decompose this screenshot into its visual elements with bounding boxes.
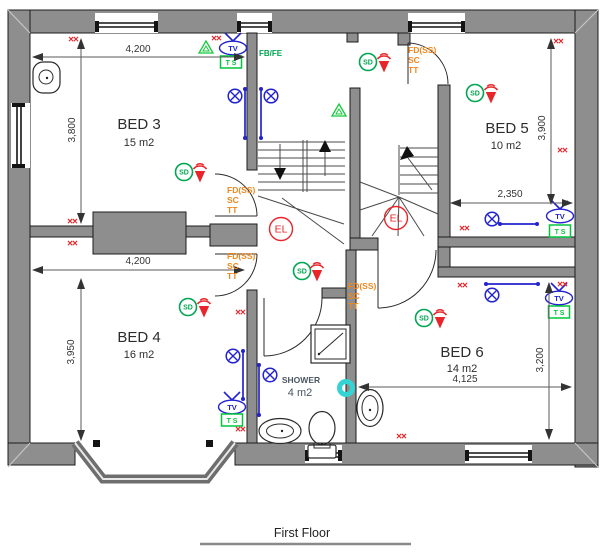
svg-text:TT: TT	[408, 65, 419, 75]
cross-marker-icon	[396, 432, 407, 443]
wash-basin-bed3	[33, 62, 60, 93]
room-area-bed5: 10 m2	[491, 140, 522, 152]
svg-text:FD(SS): FD(SS)	[227, 251, 256, 261]
socket-icon	[485, 212, 499, 226]
fire-blanket-label: FB/FE	[259, 49, 283, 58]
wall-bed4-shower	[247, 290, 257, 443]
smoke-detector-icon	[467, 85, 484, 102]
floor-plan-drawing: SD TV T S EL ××	[0, 0, 606, 554]
wall-bed5-bottom	[438, 237, 575, 247]
fire-door-label-bed4: FD(SS) SC TT	[227, 251, 256, 281]
room-area-shower: 4 m2	[288, 387, 312, 399]
drawing-title: First Floor	[200, 526, 411, 544]
cross-marker-icon	[553, 37, 564, 48]
sounder-icon	[378, 54, 391, 73]
smoke-detector-icon	[294, 263, 311, 280]
wall-bed3-bed4-left	[30, 226, 93, 237]
window-top-3	[408, 13, 465, 33]
tv-socket-icon	[221, 56, 242, 68]
fire-door-labels: FD(SS) SC TT FD(SS) SC TT FD(SS) SC TT F…	[227, 45, 437, 311]
smoke-detector-icon	[180, 299, 197, 316]
window-top-2	[237, 13, 272, 33]
cross-marker-icon	[557, 146, 568, 157]
tv-socket-icon	[550, 225, 571, 237]
dimension-bed5-width: 2,350	[497, 189, 522, 200]
svg-text:FD(SS): FD(SS)	[227, 185, 256, 195]
floor-plan-page: SD TV T S EL ××	[0, 0, 606, 554]
wall-bed3-landing	[247, 33, 257, 170]
cross-marker-icon	[235, 308, 246, 319]
svg-text:TT: TT	[227, 205, 238, 215]
wiring-runs	[243, 89, 538, 415]
title-first-floor: First Floor	[274, 526, 330, 540]
wall-bottom-left	[8, 443, 75, 465]
tv-point-icon	[547, 201, 574, 223]
socket-icon	[226, 349, 240, 363]
tv-point-icon	[219, 392, 246, 414]
wall-bottom	[235, 443, 598, 465]
room-label-bed4: BED 4	[117, 329, 160, 346]
smoke-detector-icon	[360, 54, 377, 71]
window-bottom-bed6	[465, 445, 532, 463]
fire-door-label-bed3: FD(SS) SC TT	[227, 185, 256, 215]
wall-door-nook	[210, 224, 257, 246]
dimension-bed6-depth: 3,200	[535, 347, 546, 372]
cross-marker-icon	[67, 239, 78, 250]
window-top-1	[95, 13, 158, 33]
room-area-bed6: 14 m2	[447, 363, 478, 375]
heat-alarm-icon	[332, 104, 346, 116]
sounder-icon	[311, 263, 324, 282]
fire-door-label-bed5: FD(SS) SC TT	[408, 45, 437, 75]
svg-text:TT: TT	[348, 301, 359, 311]
socket-icon	[263, 368, 277, 382]
svg-text:SC: SC	[348, 291, 360, 301]
cross-marker-icon	[67, 217, 78, 228]
emergency-light-icon	[270, 218, 293, 241]
socket-icon	[264, 89, 278, 103]
sounder-icon	[194, 164, 207, 183]
tv-socket-icon	[549, 306, 570, 318]
cross-marker-icon	[457, 281, 468, 292]
room-label-bed5: BED 5	[485, 120, 528, 137]
svg-text:SC: SC	[227, 195, 239, 205]
sounder-icon	[434, 310, 447, 329]
socket-icon	[485, 288, 499, 302]
room-area-bed4: 16 m2	[124, 349, 155, 361]
dimension-bed6-width: 4,125	[452, 374, 477, 385]
wall-store-bottom	[438, 267, 575, 277]
emergency-light-icon	[385, 207, 408, 230]
cross-marker-icon	[557, 280, 568, 291]
sounder-icon	[485, 85, 498, 104]
chimney-breast	[93, 212, 186, 254]
smoke-detector-icon	[416, 310, 433, 327]
socket-icon	[228, 89, 242, 103]
cross-marker-icon	[459, 224, 470, 235]
smoke-detector-icon	[176, 164, 193, 181]
dimension-bed3-width: 4,200	[125, 44, 150, 55]
wall-stairwell-right	[438, 85, 450, 277]
room-area-bed3: 15 m2	[124, 137, 155, 149]
door-bed6	[378, 250, 436, 308]
svg-text:SC: SC	[227, 261, 239, 271]
cross-marker-icon	[68, 35, 79, 46]
room-label-bed3: BED 3	[117, 116, 160, 133]
window-left	[11, 103, 30, 168]
bay-window	[75, 440, 235, 479]
wash-basin-bed6	[357, 390, 383, 427]
dimension-bed4-width: 4,200	[125, 256, 150, 267]
wall-left	[8, 10, 30, 443]
dimension-bed4-depth: 3,950	[66, 339, 77, 364]
svg-text:FD(SS): FD(SS)	[348, 281, 377, 291]
toilet	[308, 412, 336, 459]
wall-stairwell-left	[350, 88, 360, 238]
svg-text:FD(SS): FD(SS)	[408, 45, 437, 55]
svg-text:TT: TT	[227, 271, 238, 281]
dimension-bed3-depth: 3,800	[67, 117, 78, 142]
wall-stair-bottom	[350, 238, 378, 250]
sounder-icon	[198, 299, 211, 318]
tv-point-icon	[220, 33, 247, 55]
dimension-bed5-depth: 3,900	[537, 115, 548, 140]
fire-door-label-bed6: FD(SS) SC TT	[348, 281, 377, 311]
wall-stub-landing	[347, 33, 358, 42]
room-label-shower: SHOWER	[282, 375, 320, 385]
fixtures	[33, 62, 383, 458]
stairs-main-flight	[258, 140, 345, 244]
room-label-bed6: BED 6	[440, 344, 483, 361]
svg-text:SC: SC	[408, 55, 420, 65]
shower-tray	[311, 325, 350, 363]
cross-marker-icon	[235, 425, 246, 436]
cross-marker-icon	[211, 34, 222, 45]
wall-right	[575, 10, 598, 467]
wash-basin-shower	[259, 419, 301, 444]
